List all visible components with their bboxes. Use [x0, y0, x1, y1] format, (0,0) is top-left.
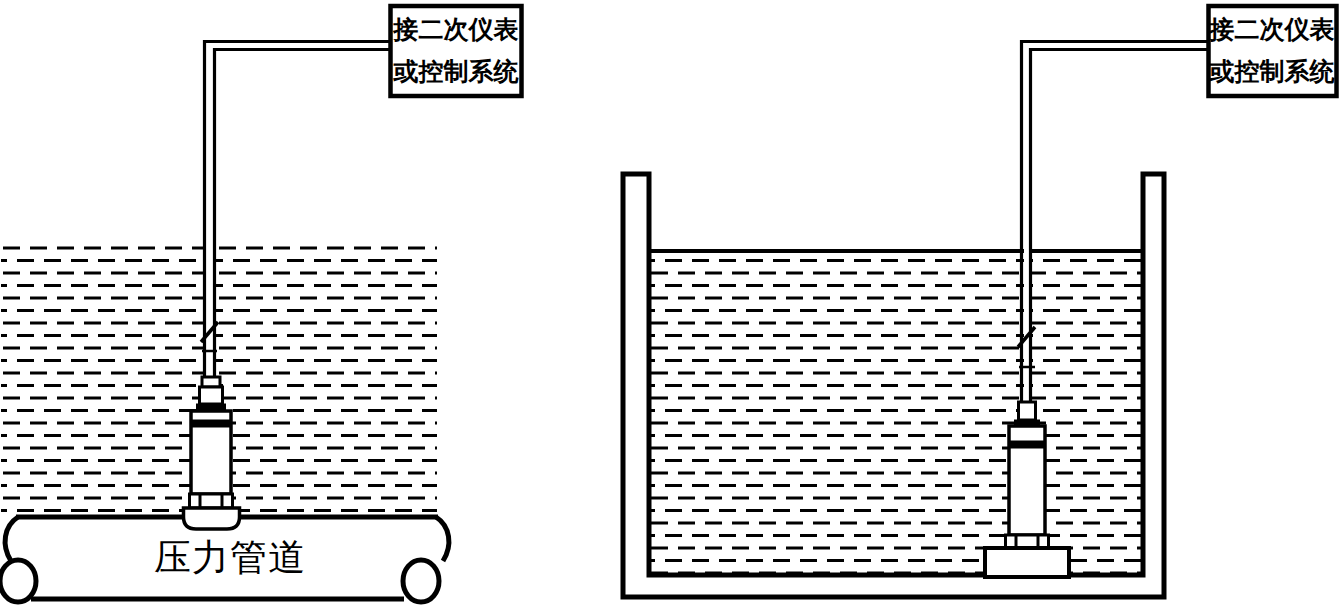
transmitter-mounting-boss: [184, 508, 240, 529]
diagram-canvas: 压力管道 接二次仪表 或控制系统: [0, 0, 1340, 606]
left-diagram: 压力管道 接二次仪表 或控制系统: [0, 6, 522, 602]
transmitter-band: [192, 420, 230, 427]
transmitter-mounting-block: [985, 548, 1069, 577]
transmitter-connector: [1019, 402, 1036, 420]
connect-box-left: 接二次仪表 或控制系统: [391, 6, 522, 96]
connect-box-text-line2: 或控制系统: [1209, 57, 1336, 85]
pipe-left-end-curve: [5, 517, 18, 561]
pipe-right-end-curve: [436, 517, 449, 561]
installation-diagram: 压力管道 接二次仪表 或控制系统: [0, 0, 1340, 606]
transmitter-hex-nut: [190, 494, 233, 508]
connect-box-text-line1: 接二次仪表: [1209, 15, 1335, 43]
transmitter-band: [1010, 441, 1044, 448]
connect-box-right: 接二次仪表 或控制系统: [1209, 6, 1337, 96]
connect-box-text-line1: 接二次仪表: [393, 15, 519, 43]
right-diagram: 接二次仪表 或控制系统: [623, 6, 1337, 597]
pipe-label: 压力管道: [154, 537, 306, 578]
pipe-right-end-cap: [403, 560, 439, 602]
transmitter-connector: [200, 387, 223, 404]
liquid-hatch-right: [651, 253, 1141, 574]
connect-box-text-line2: 或控制系统: [393, 57, 520, 85]
pipe-left-end-cap: [0, 560, 36, 602]
